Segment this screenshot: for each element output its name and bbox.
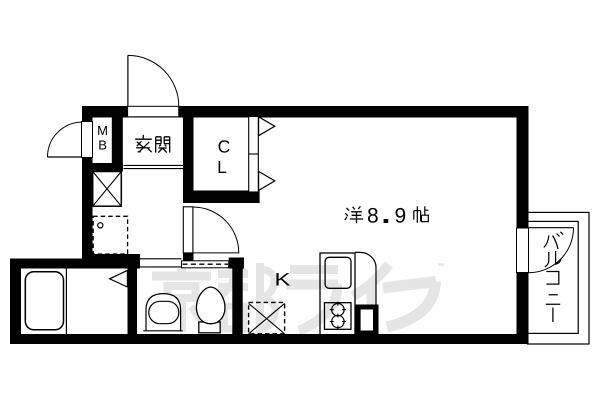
svg-text:B: B	[98, 137, 107, 152]
svg-text:9: 9	[395, 205, 407, 228]
svg-text:K: K	[275, 269, 291, 289]
svg-text:8: 8	[367, 205, 379, 228]
svg-text:C: C	[218, 137, 231, 157]
svg-text:M: M	[97, 123, 108, 138]
svg-text:L: L	[217, 157, 227, 177]
